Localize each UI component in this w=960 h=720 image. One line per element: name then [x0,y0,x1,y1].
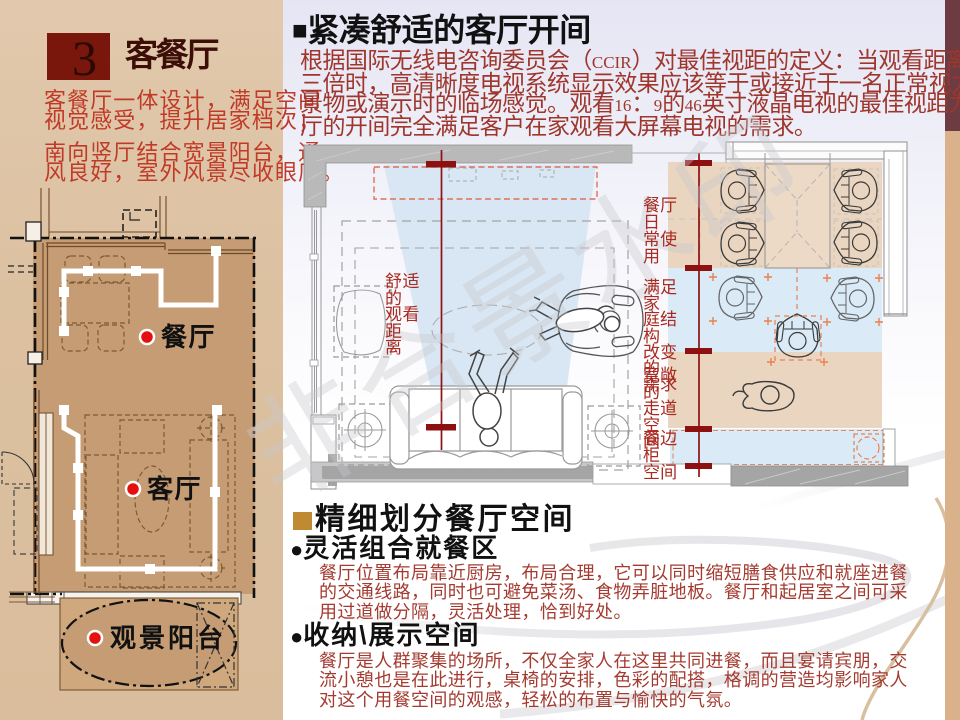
svg-text:非合景水印: 非合景水印 [225,92,829,527]
